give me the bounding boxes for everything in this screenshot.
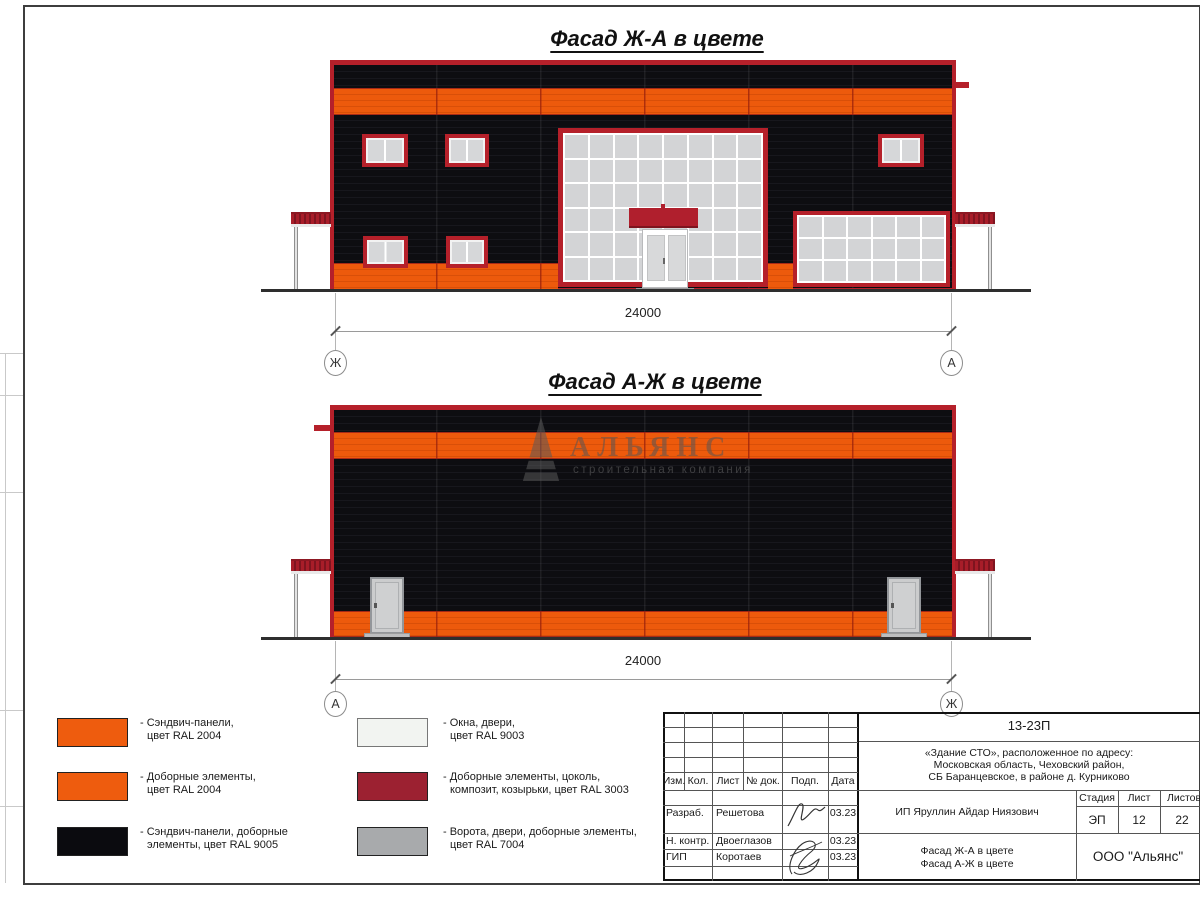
titleblock-line (663, 742, 858, 743)
glass-panel (714, 258, 737, 281)
drawing-name-line: Фасад Ж-А в цвете (920, 844, 1013, 858)
glass-panel (664, 184, 687, 207)
glass-panel (873, 217, 896, 237)
sheet-label: Лист (1128, 791, 1151, 805)
window (362, 134, 408, 167)
canopy-post (988, 227, 992, 290)
glass-panel (714, 135, 737, 158)
roof-trim-bar (314, 425, 330, 431)
legend-label: - Ворота, двери, доборные элементы,цвет … (443, 826, 637, 852)
facade1-title: Фасад Ж-А в цвете (550, 26, 763, 52)
glass-panel (848, 239, 871, 259)
entrance-canopy-tab (661, 204, 665, 208)
glass-panel (714, 160, 737, 183)
titleblock-line (712, 712, 713, 881)
row-role: Разраб. (666, 806, 704, 820)
sheets-value: 22 (1175, 813, 1188, 827)
glass-panel (738, 135, 761, 158)
glass-panel (590, 258, 613, 281)
service-door (370, 577, 404, 634)
glass-panel (590, 184, 613, 207)
extension-line (951, 641, 952, 694)
glass-panel (799, 261, 822, 281)
watermark-subtitle: строительная компания (573, 464, 753, 476)
legend-swatch (357, 718, 428, 747)
col-header-ndok: № док. (746, 774, 780, 788)
door-leaf-glass (668, 235, 686, 281)
glass-panel (664, 160, 687, 183)
titleblock-line (663, 866, 858, 867)
glass-panel (897, 239, 920, 259)
margin-line (0, 353, 23, 354)
glass-panel (615, 258, 638, 281)
glass-panel (615, 184, 638, 207)
glazed-gate (793, 211, 950, 287)
titleblock-line (828, 712, 829, 881)
row-name: Коротаев (716, 850, 761, 864)
glass-panel (639, 135, 662, 158)
glass-panel (799, 239, 822, 259)
ground-line (261, 637, 1031, 640)
row-role: ГИП (666, 850, 687, 864)
window (363, 236, 408, 268)
ground-line (261, 289, 1031, 292)
col-header-izm: Изм. (663, 774, 686, 788)
facade1-orange-stripe (334, 88, 952, 115)
margin-line (0, 395, 23, 396)
margin-line (0, 492, 23, 493)
company-name: ООО "Альянс" (1093, 850, 1183, 864)
titleblock-line (663, 712, 665, 881)
glass-panel (922, 261, 945, 281)
titleblock-line (743, 712, 744, 790)
titleblock-line (1160, 790, 1161, 834)
glass-panel (565, 209, 588, 232)
signature-scribble (784, 796, 826, 832)
glass-panel (615, 233, 638, 256)
glass-panel (590, 209, 613, 232)
glass-panel (714, 209, 737, 232)
dimension-line (335, 331, 952, 332)
glass-panel (848, 217, 871, 237)
drawing-name-line: Фасад А-Ж в цвете (920, 857, 1013, 871)
window (446, 236, 488, 268)
glass-panel (824, 217, 847, 237)
service-door (887, 577, 921, 634)
glass-panel (639, 160, 662, 183)
facade2-title: Фасад А-Ж в цвете (548, 369, 761, 395)
titleblock-line (1118, 790, 1119, 834)
titleblock-line (663, 772, 858, 773)
legend-label: - Сэндвич-панели, доборныеэлементы, цвет… (140, 826, 288, 852)
project-address-line: Московская область, Чеховский район, (934, 759, 1125, 771)
side-canopy-right (955, 559, 995, 574)
titleblock-line (1076, 806, 1200, 807)
legend-swatch (57, 827, 128, 856)
glass-panel (738, 160, 761, 183)
door-handle (374, 603, 377, 608)
row-date: 03.23 (830, 834, 856, 848)
glass-panel (689, 160, 712, 183)
project-address-line: «Здание СТО», расположенное по адресу: (925, 747, 1133, 759)
legend-swatch (357, 772, 428, 801)
glass-panel (897, 217, 920, 237)
facade2-plinth (334, 611, 952, 637)
company-watermark: АЛЬЯНС строительная компания (520, 415, 860, 485)
extension-line (335, 293, 336, 350)
window (878, 134, 924, 167)
signature-scribble (784, 834, 826, 878)
titleblock-line (663, 727, 858, 728)
glass-panel (714, 184, 737, 207)
legend-label: - Сэндвич-панели,цвет RAL 2004 (140, 717, 234, 743)
window-glass (368, 140, 402, 161)
row-date: 03.23 (830, 850, 856, 864)
legend-label: - Доборные элементы, цоколь,композит, ко… (443, 771, 629, 797)
axis-bubble: А (940, 350, 963, 376)
glass-panel (714, 233, 737, 256)
glass-panel (615, 160, 638, 183)
dimension-value: 24000 (625, 305, 661, 320)
extension-line (951, 293, 952, 350)
glass-panel (824, 239, 847, 259)
glass-panel (848, 261, 871, 281)
titleblock-line (663, 790, 1200, 791)
dimension-line (335, 679, 952, 680)
door-handle (891, 603, 894, 608)
canopy-post (294, 227, 298, 290)
glass-panel (922, 217, 945, 237)
glass-panel (639, 184, 662, 207)
glass-panel (565, 160, 588, 183)
side-canopy-left (291, 212, 331, 227)
stage-label: Стадия (1079, 791, 1115, 805)
glass-panel (664, 135, 687, 158)
axis-bubble: А (324, 691, 347, 717)
client-name: ИП Яруллин Айдар Ниязович (895, 805, 1038, 819)
col-header-kol: Кол. (688, 774, 709, 788)
pyramid-logo-icon (522, 417, 560, 481)
titleblock-line (663, 757, 858, 758)
col-header-podp: Подп. (791, 774, 819, 788)
legend-swatch (57, 772, 128, 801)
extension-line (335, 641, 336, 694)
dimension-value: 24000 (625, 653, 661, 668)
facade1-plinth-mid (768, 263, 793, 290)
row-date: 03.23 (830, 806, 856, 820)
canopy-post (988, 574, 992, 637)
doc-number: 13-23П (1008, 719, 1051, 733)
glass-panel (590, 233, 613, 256)
titleblock-line (1076, 790, 1077, 881)
titleblock-line (857, 712, 859, 881)
legend-label: - Окна, двери,цвет RAL 9003 (443, 717, 524, 743)
margin-line (5, 353, 6, 883)
stage-value: ЭП (1088, 813, 1105, 827)
col-header-list: Лист (717, 774, 740, 788)
glass-panel (590, 135, 613, 158)
margin-line (0, 710, 23, 711)
window-glass (369, 242, 402, 262)
axis-bubble: Ж (324, 350, 347, 376)
drawing-sheet: Фасад Ж-А в цвете 24000 Ж А Фасад А-Ж в … (0, 0, 1200, 900)
margin-line (0, 806, 23, 807)
door-handle (663, 258, 665, 264)
titleblock-line (782, 712, 783, 881)
sheets-label: Листов (1167, 791, 1200, 805)
row-name: Решетова (716, 806, 764, 820)
titleblock-line (859, 741, 1200, 742)
legend-swatch (357, 827, 428, 856)
roof-trim-bar (956, 82, 969, 88)
glass-panel (565, 135, 588, 158)
glass-panel (689, 184, 712, 207)
side-canopy-right (955, 212, 995, 227)
row-role: Н. контр. (666, 834, 709, 848)
titleblock-line (663, 879, 1200, 881)
sheet-value: 12 (1132, 813, 1145, 827)
glass-panel (738, 233, 761, 256)
glass-panel (590, 160, 613, 183)
glass-panel (824, 261, 847, 281)
glass-panel (689, 135, 712, 158)
glass-panel (922, 239, 945, 259)
window-glass (884, 140, 918, 161)
legend-label: - Доборные элементы,цвет RAL 2004 (140, 771, 256, 797)
glass-panel (689, 233, 712, 256)
glass-panel (615, 135, 638, 158)
glass-panel (873, 239, 896, 259)
watermark-name: АЛЬЯНС (570, 432, 732, 464)
glass-panel (738, 258, 761, 281)
glass-panel (689, 258, 712, 281)
glass-panel (738, 184, 761, 207)
side-canopy-left (291, 559, 331, 574)
glass-panel (738, 209, 761, 232)
legend-swatch (57, 718, 128, 747)
glass-panel (873, 261, 896, 281)
glass-panel (565, 258, 588, 281)
project-address-line: СБ Баранцевское, в районе д. Курниково (928, 771, 1129, 783)
entrance-canopy (629, 208, 698, 228)
door-leaf (375, 582, 399, 629)
glass-panel (565, 184, 588, 207)
col-header-data: Дата (831, 774, 854, 788)
window (445, 134, 489, 167)
entrance-door (642, 229, 688, 288)
window-glass (451, 140, 483, 161)
glass-panel (897, 261, 920, 281)
door-leaf (892, 582, 916, 629)
window-glass (452, 242, 482, 262)
canopy-post (294, 574, 298, 637)
glass-panel (565, 233, 588, 256)
glass-panel (799, 217, 822, 237)
row-name: Двоеглазов (716, 834, 772, 848)
